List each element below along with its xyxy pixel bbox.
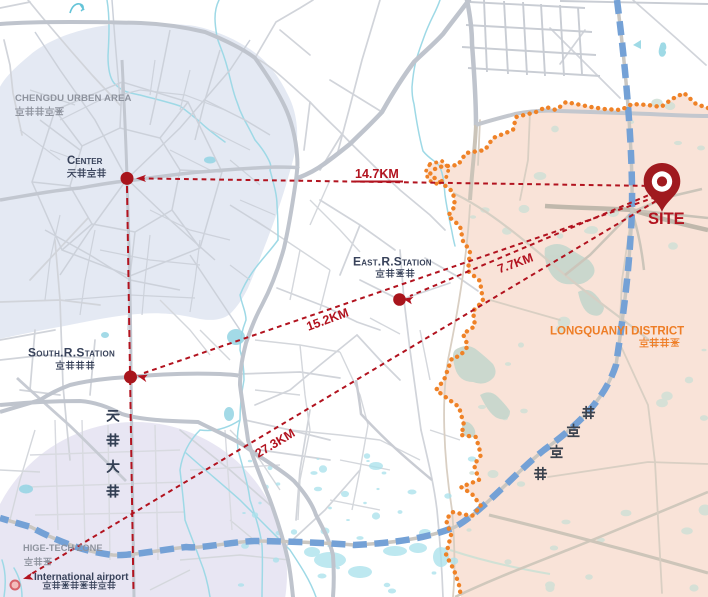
svg-text:SITE: SITE — [648, 210, 685, 228]
svg-text:LONGQUANYI DISTRICT: LONGQUANYI DISTRICT — [550, 326, 684, 338]
svg-text:HIGE-TECH ZONE: HIGE-TECH ZONE — [23, 543, 103, 553]
svg-text:East.R.Station: East.R.Station — [353, 255, 432, 269]
svg-text:14.7KM: 14.7KM — [355, 167, 399, 181]
svg-text:Center: Center — [67, 155, 103, 167]
svg-text:CHENGDU URBEN AREA: CHENGDU URBEN AREA — [15, 93, 132, 104]
svg-text:South.R.Station: South.R.Station — [28, 346, 115, 360]
